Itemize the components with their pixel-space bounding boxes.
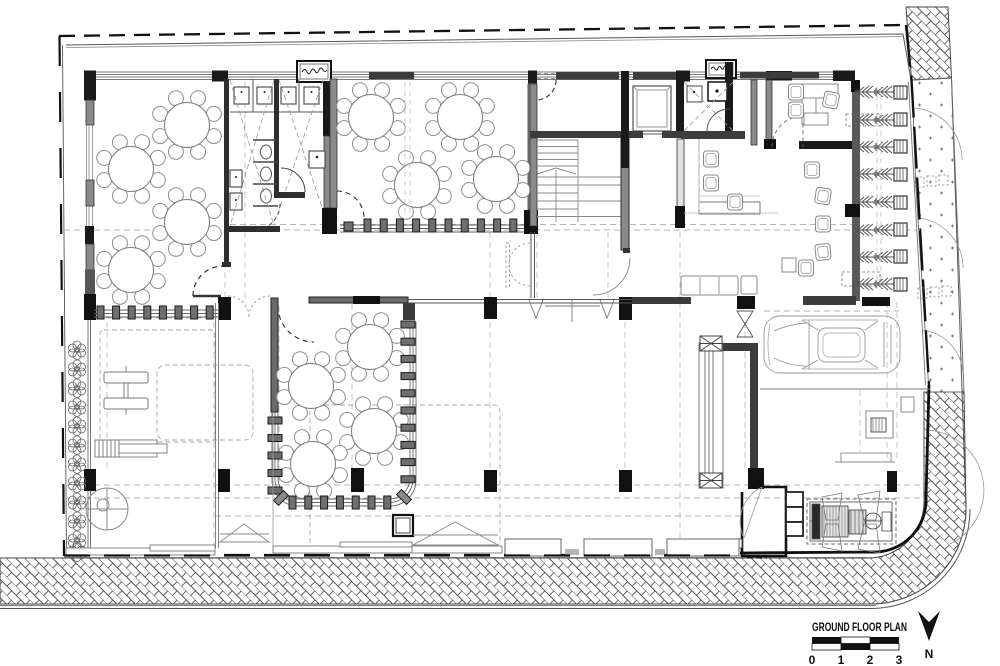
svg-text:0: 0 — [809, 653, 816, 666]
svg-text:GROUND FLOOR PLAN: GROUND FLOOR PLAN — [812, 620, 907, 634]
svg-text:1: 1 — [838, 653, 845, 666]
svg-text:2: 2 — [867, 653, 874, 666]
svg-text:3: 3 — [896, 653, 903, 666]
svg-text:N: N — [925, 647, 934, 661]
